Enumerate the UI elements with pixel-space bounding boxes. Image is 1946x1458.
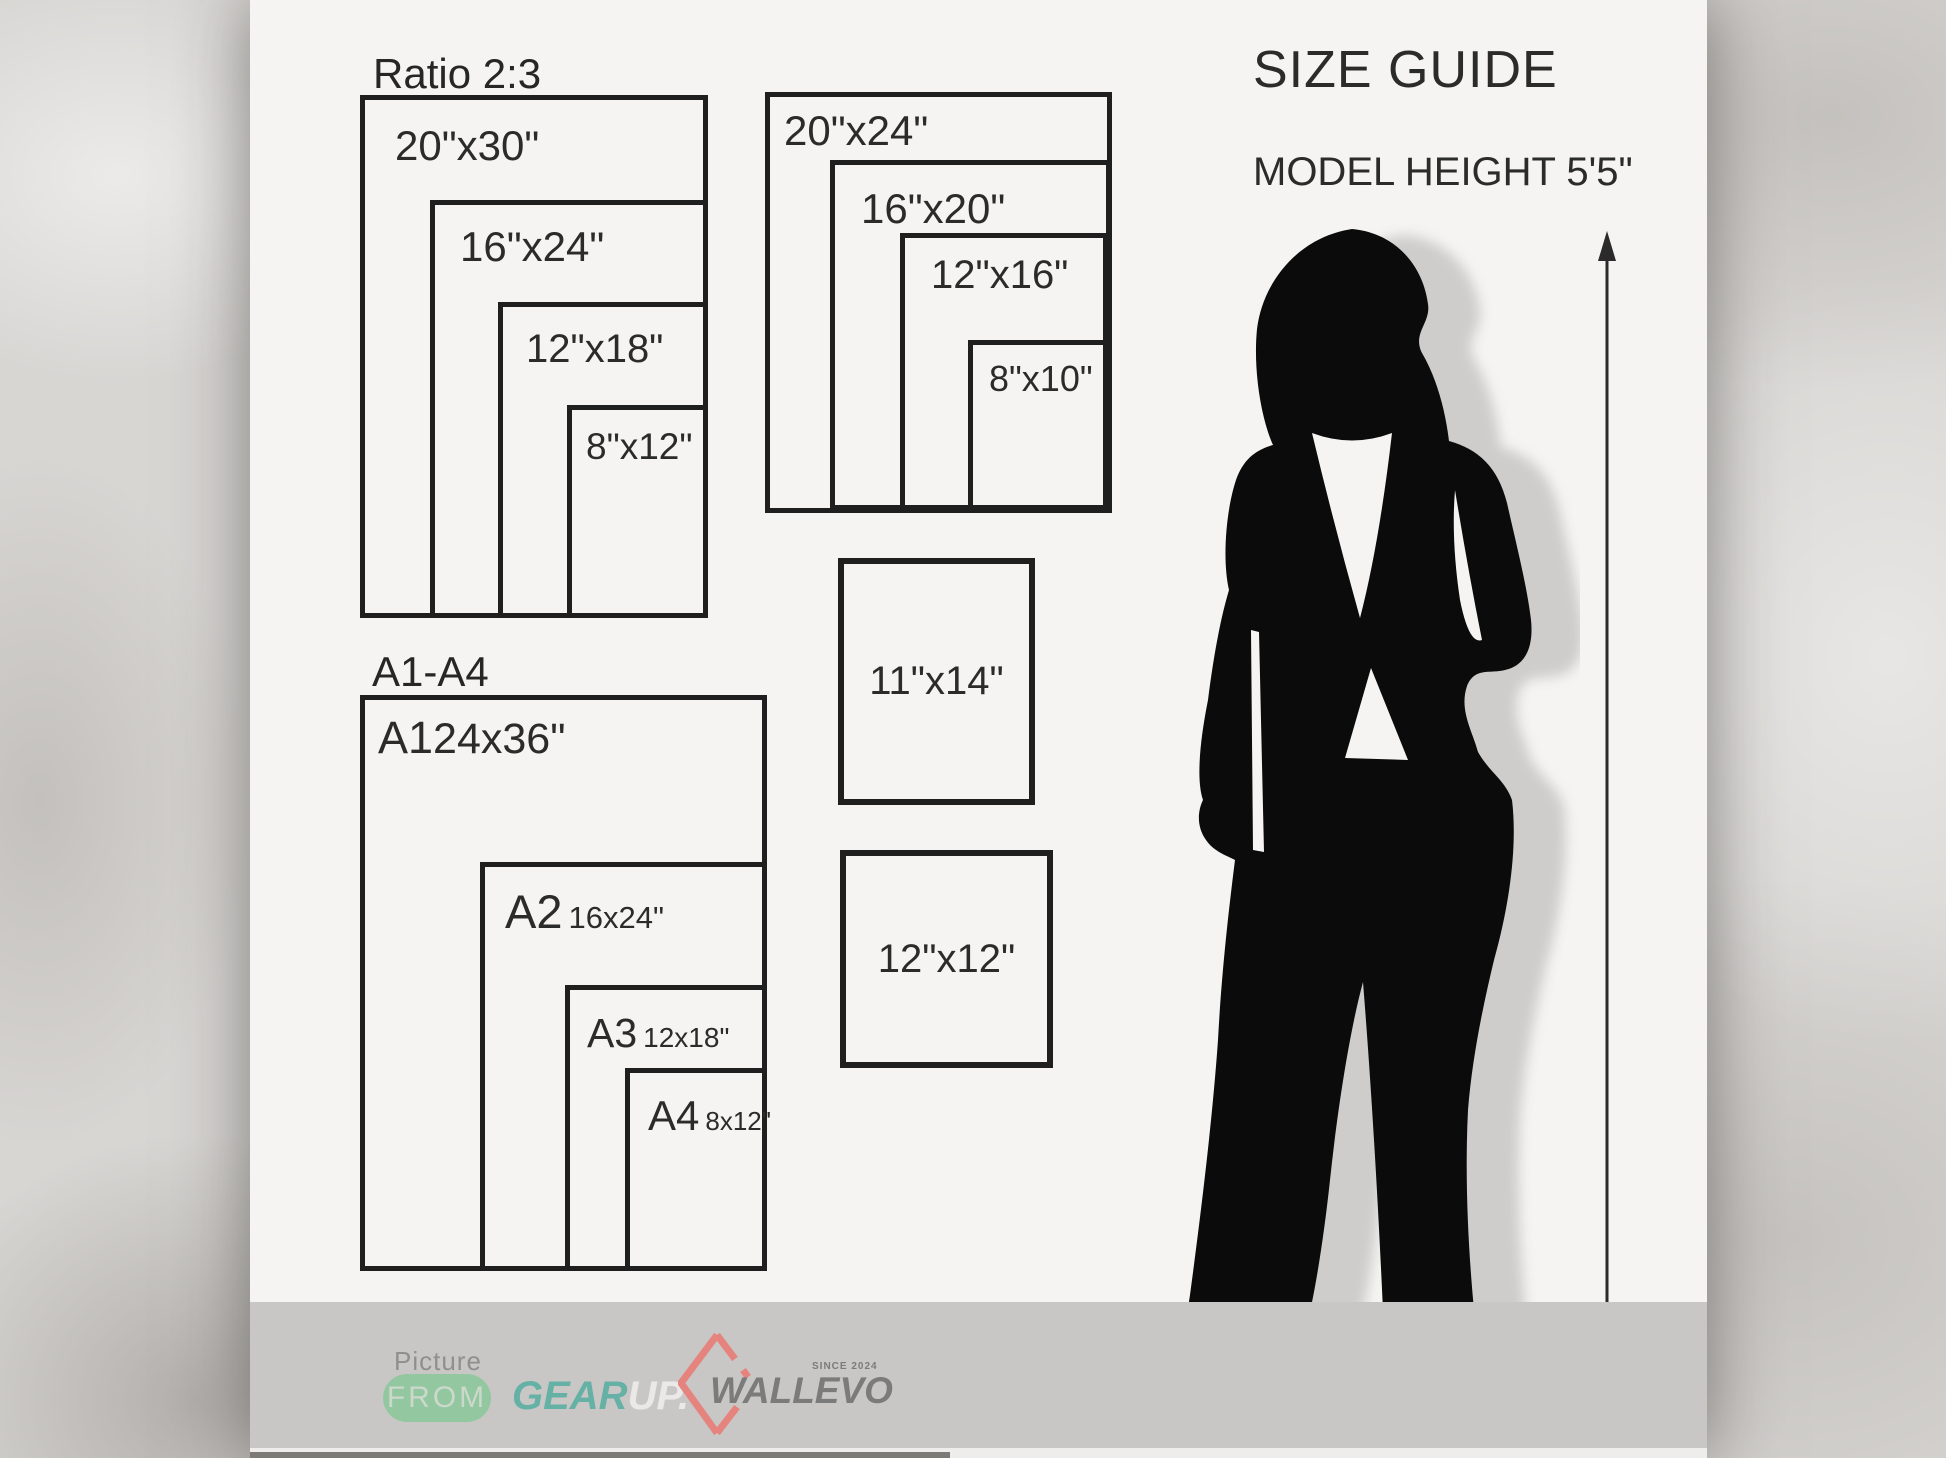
model-silhouette [1160, 215, 1580, 1365]
size-label: 8"x12" [572, 410, 693, 468]
size-label: 20"x30" [365, 100, 539, 170]
a-code: A4 [648, 1092, 699, 1140]
picture-label: Picture [394, 1346, 482, 1377]
a-code: A3 [587, 1010, 637, 1057]
size-label: 12"x12" [878, 937, 1015, 982]
size-box-8x12: 8"x12" [567, 405, 708, 618]
size-label: 20"x24" [770, 97, 928, 155]
gearup-logo-gear: GEAR [512, 1374, 628, 1418]
footer-dark-edge [250, 1452, 950, 1458]
page-title: SIZE GUIDE [1253, 40, 1558, 100]
from-badge: FROM [383, 1374, 491, 1422]
height-arrow [1590, 225, 1630, 1365]
model-height-label: MODEL HEIGHT 5'5" [1253, 150, 1633, 195]
size-label: 12"x16" [905, 238, 1068, 298]
a-code: A1 [378, 712, 433, 764]
a-size: 12x18" [643, 1022, 729, 1054]
a-size: 8x12" [705, 1106, 771, 1137]
size-box-8x10: 8"x10" [968, 340, 1108, 510]
size-label: 8"x10" [973, 345, 1093, 400]
a-size: 24x36" [433, 715, 565, 764]
size-label: 16"x20" [835, 165, 1005, 233]
ratio-group-title: Ratio 2:3 [373, 50, 541, 98]
a-code: A2 [505, 884, 563, 939]
size-guide-infographic: Ratio 2:3 20"x30" 16"x24" 12"x18" 8"x12"… [0, 0, 1946, 1458]
size-label: 12"x18" [503, 307, 663, 372]
size-label-a4: A4 8x12" [648, 1092, 771, 1140]
from-label: FROM [387, 1381, 487, 1415]
a-group-title: A1-A4 [372, 648, 489, 696]
size-box-12x12: 12"x12" [840, 850, 1053, 1068]
wallevo-since-label: SINCE 2024 [812, 1361, 878, 1372]
gearup-logo: GEARUP. [512, 1374, 689, 1419]
size-label: 16"x24" [435, 205, 604, 271]
size-label-a1: A1 24x36" [378, 712, 565, 764]
size-label-a3: A3 12x18" [587, 1010, 729, 1057]
a-size: 16x24" [569, 900, 664, 936]
wallevo-logo: WALLEVO [710, 1370, 893, 1412]
size-label-a2: A2 16x24" [505, 884, 664, 939]
arrowhead-up [1598, 231, 1616, 261]
size-label: 11"x14" [869, 659, 1003, 704]
size-box-11x14: 11"x14" [838, 558, 1035, 805]
